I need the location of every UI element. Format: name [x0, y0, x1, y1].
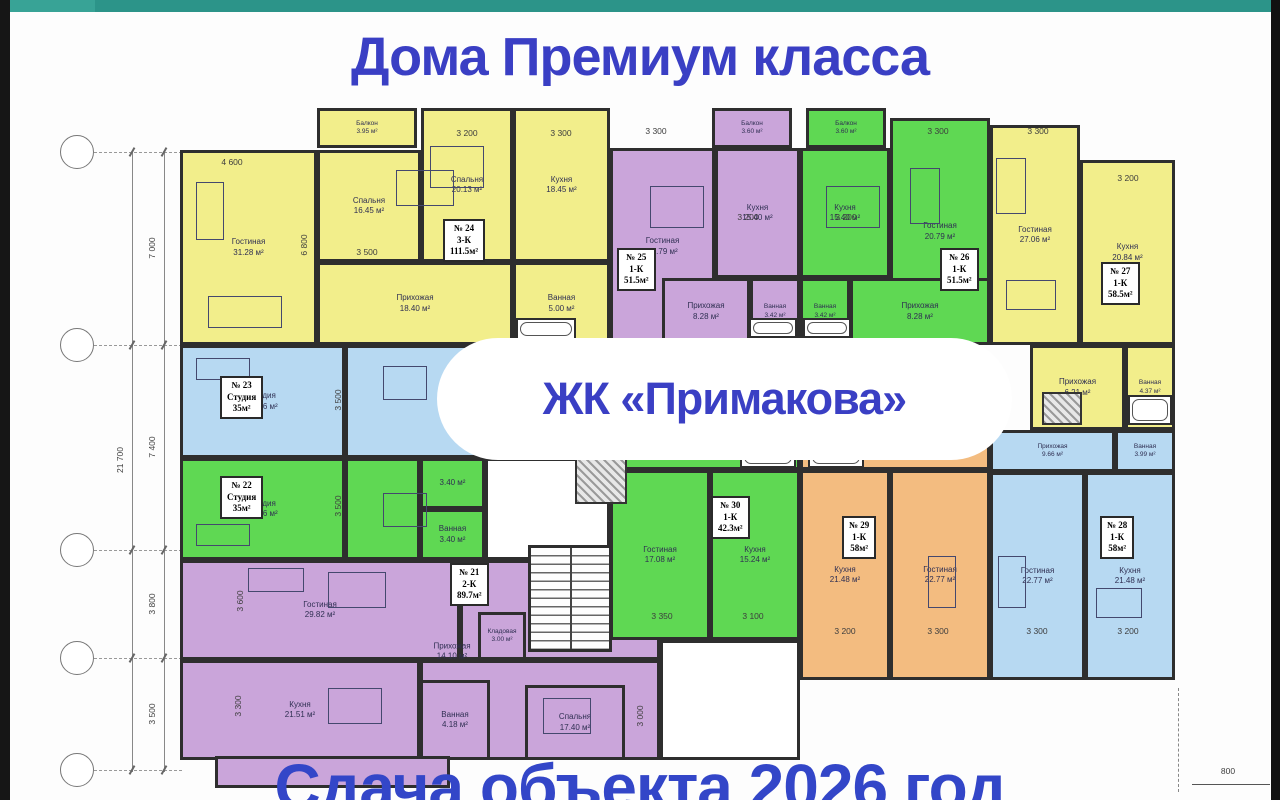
furniture — [196, 524, 250, 546]
furniture — [1006, 280, 1056, 310]
apartment-type: 1-К — [624, 264, 649, 276]
elevator-shaft — [1042, 392, 1082, 425]
room: Балкон3.95 м² — [317, 108, 417, 148]
dimension-label: 3 200 — [456, 128, 477, 138]
room: Балкон3.60 м² — [806, 108, 886, 148]
dimension-label: 3 300 — [927, 626, 948, 636]
apartment-info-box: № 271-К58.5м² — [1101, 262, 1140, 305]
room: Балкон3.60 м² — [712, 108, 792, 148]
room-label: Прихожая9.66 м² — [1037, 443, 1067, 460]
apartment-num: № 21 — [457, 567, 482, 579]
room-label: Прихожая14.10 м² — [433, 642, 470, 663]
dimension-label: 3 200 — [737, 212, 758, 222]
room-label: Гостиная20.79 м² — [923, 221, 957, 242]
dimension-label: 3 500 — [356, 247, 377, 257]
apartment-type: 1-К — [947, 264, 972, 276]
dimension-label: 3 500 — [147, 703, 157, 724]
room-label: Кухня21.48 м² — [1115, 566, 1145, 587]
furniture — [998, 556, 1026, 608]
apartment-area: 89.7м² — [457, 590, 482, 602]
room-label: Гостиная17.08 м² — [643, 545, 677, 566]
apartment-info-box: № 301-К42.3м² — [711, 496, 750, 539]
room: Прихожая18.40 м² — [317, 262, 513, 345]
furniture — [328, 572, 386, 608]
room: Гостиная29.82 м² — [180, 560, 460, 660]
apartment-num: № 22 — [227, 480, 256, 492]
room: Ванная4.18 м² — [420, 680, 490, 760]
room-label: Гостиная27.06 м² — [1018, 225, 1052, 246]
dimension-label: 3 300 — [1027, 126, 1048, 136]
project-name-badge: ЖК «Примакова» — [437, 338, 1012, 460]
dimension-label: 3 600 — [235, 590, 245, 611]
room-label: Балкон3.60 м² — [741, 120, 763, 137]
axis-circle — [60, 533, 94, 567]
room-label: Ванная5.00 м² — [548, 293, 575, 314]
bathtub — [1128, 395, 1172, 425]
room: Кладовая3.00 м² — [478, 612, 526, 660]
apartment-num: № 23 — [227, 380, 256, 392]
apartment-info-box: № 23Студия35м² — [220, 376, 263, 419]
axis-line — [94, 152, 182, 153]
dimension-label: 6 800 — [299, 234, 309, 255]
room-label: Ванная3.40 м² — [439, 524, 466, 545]
left-edge-strip — [0, 0, 10, 800]
room-label: Кладовая3.00 м² — [487, 628, 516, 645]
top-bar-accent — [10, 0, 95, 12]
apartment-type: Студия — [227, 392, 256, 404]
apartment-num: № 27 — [1108, 266, 1133, 278]
right-edge-strip — [1271, 0, 1280, 800]
dimension-label: 3 200 — [834, 626, 855, 636]
room-label: Кухня20.84 м² — [1112, 242, 1142, 263]
apartment-num: № 30 — [718, 500, 743, 512]
apartment-num: № 25 — [624, 252, 649, 264]
apartment-area: 42.3м² — [718, 523, 743, 535]
furniture — [650, 186, 704, 228]
dimension-label: 3 500 — [333, 495, 343, 516]
apartment-num: № 24 — [450, 223, 478, 235]
dimension-label: 3 200 — [835, 212, 856, 222]
axis-circle — [60, 641, 94, 675]
apartment-type: 1-К — [849, 532, 869, 544]
apartment-info-box: № 243-К111.5м² — [443, 219, 485, 262]
furniture — [543, 698, 591, 734]
axis-line — [94, 658, 182, 659]
room: Прихожая9.66 м² — [990, 430, 1115, 472]
axis-line — [164, 150, 165, 772]
room: Кухня21.48 м² — [1085, 472, 1175, 680]
dimension-label: 3 350 — [651, 611, 672, 621]
room — [660, 640, 800, 760]
dimension-label: 3 300 — [645, 126, 666, 136]
furniture — [928, 556, 956, 608]
dimension-label: 4 600 — [221, 157, 242, 167]
room: Спальня16.45 м² — [317, 150, 421, 262]
dimension-label: 3 000 — [635, 705, 645, 726]
apartment-type: 1-К — [718, 512, 743, 524]
room-label: Балкон3.95 м² — [356, 120, 378, 137]
elevator-shaft — [575, 456, 627, 504]
furniture — [196, 182, 224, 240]
room: Кухня21.48 м² — [800, 470, 890, 680]
bathtub — [749, 318, 797, 338]
room-label: Кухня15.24 м² — [740, 545, 770, 566]
dimension-label: 3 200 — [1117, 173, 1138, 183]
floor-plan-page: Балкон3.95 м²Гостиная31.28 м²Спальня16.4… — [0, 0, 1280, 800]
furniture — [208, 296, 282, 328]
dimension-label: 3 300 — [233, 695, 243, 716]
apartment-info-box: № 261-К51.5м² — [940, 248, 979, 291]
apartment-type: 1-К — [1107, 532, 1127, 544]
room: 3.40 м² — [420, 458, 485, 509]
room: Ванная3.40 м² — [420, 509, 485, 560]
axis-circle — [60, 328, 94, 362]
apartment-info-box: № 212-К89.7м² — [450, 563, 489, 606]
room-label: Балкон3.60 м² — [835, 120, 857, 137]
dimension-label: 3 100 — [742, 611, 763, 621]
apartment-area: 58м² — [849, 543, 869, 555]
apartment-info-box: № 281-К58м² — [1100, 516, 1134, 559]
room-label: 3.40 м² — [440, 478, 466, 488]
furniture — [1096, 588, 1142, 618]
room-label: Ванная3.99 м² — [1134, 443, 1156, 460]
dimension-label: 21 700 — [115, 447, 125, 473]
room-label: Прихожая8.28 м² — [901, 301, 938, 322]
apartment-type: Студия — [227, 492, 256, 504]
room-label: Кухня21.48 м² — [830, 565, 860, 586]
furniture — [383, 493, 427, 527]
room: Прихожая8.28 м² — [662, 278, 750, 345]
dimension-label: 3 500 — [333, 389, 343, 410]
axis-circle — [60, 135, 94, 169]
apartment-num: № 29 — [849, 520, 869, 532]
room: Ванная3.99 м² — [1115, 430, 1175, 472]
project-name: ЖК «Примакова» — [543, 373, 906, 425]
furniture — [430, 146, 484, 188]
page-title: Дома Премиум класса — [0, 26, 1280, 88]
apartment-info-box: № 22Студия35м² — [220, 476, 263, 519]
dimension-label: 3 300 — [1026, 626, 1047, 636]
dimension-label: 7 000 — [147, 237, 157, 258]
room-label: Прихожая14.10 м² — [433, 642, 470, 663]
room-label: Спальня16.45 м² — [353, 196, 385, 217]
apartment-area: 51.5м² — [624, 275, 649, 287]
room-label: Кухня18.45 м² — [546, 175, 576, 196]
apartment-info-box: № 251-К51.5м² — [617, 248, 656, 291]
axis-line — [132, 150, 133, 772]
dimension-label: 3 800 — [147, 593, 157, 614]
stairs — [528, 545, 612, 652]
dimension-label: 3 300 — [550, 128, 571, 138]
bathtub — [803, 318, 851, 338]
top-bar — [10, 0, 1271, 12]
apartment-type: 2-К — [457, 579, 482, 591]
room-label: Ванная4.18 м² — [441, 710, 468, 731]
apartment-area: 58.5м² — [1108, 289, 1133, 301]
furniture — [910, 168, 940, 224]
dimension-label: 3 300 — [927, 126, 948, 136]
room-label: Гостиная31.28 м² — [232, 237, 266, 258]
apartment-area: 58м² — [1107, 543, 1127, 555]
furniture — [996, 158, 1026, 214]
bathtub — [516, 318, 576, 340]
furniture — [328, 688, 382, 724]
axis-line — [94, 550, 182, 551]
room-label: Прихожая18.40 м² — [396, 293, 433, 314]
dimension-label: 7 400 — [147, 436, 157, 457]
completion-title: Сдача объекта 2026 год — [0, 750, 1280, 800]
apartment-area: 35м² — [227, 503, 256, 515]
apartment-type: 3-К — [450, 235, 478, 247]
apartment-area: 111.5м² — [450, 246, 478, 258]
room-label: Ванная4.37 м² — [1139, 379, 1161, 396]
furniture — [248, 568, 304, 592]
apartment-type: 1-К — [1108, 278, 1133, 290]
dimension-label: 3 200 — [1117, 626, 1138, 636]
room: Кухня21.51 м² — [180, 660, 420, 760]
apartment-info-box: № 291-К58м² — [842, 516, 876, 559]
room-label: Прихожая8.28 м² — [687, 301, 724, 322]
room: Кухня20.84 м² — [1080, 160, 1175, 345]
furniture — [383, 366, 427, 400]
apartment-area: 35м² — [227, 403, 256, 415]
room-label: Кухня21.51 м² — [285, 700, 315, 721]
apartment-area: 51.5м² — [947, 275, 972, 287]
apartment-num: № 26 — [947, 252, 972, 264]
axis-line — [94, 345, 182, 346]
apartment-num: № 28 — [1107, 520, 1127, 532]
